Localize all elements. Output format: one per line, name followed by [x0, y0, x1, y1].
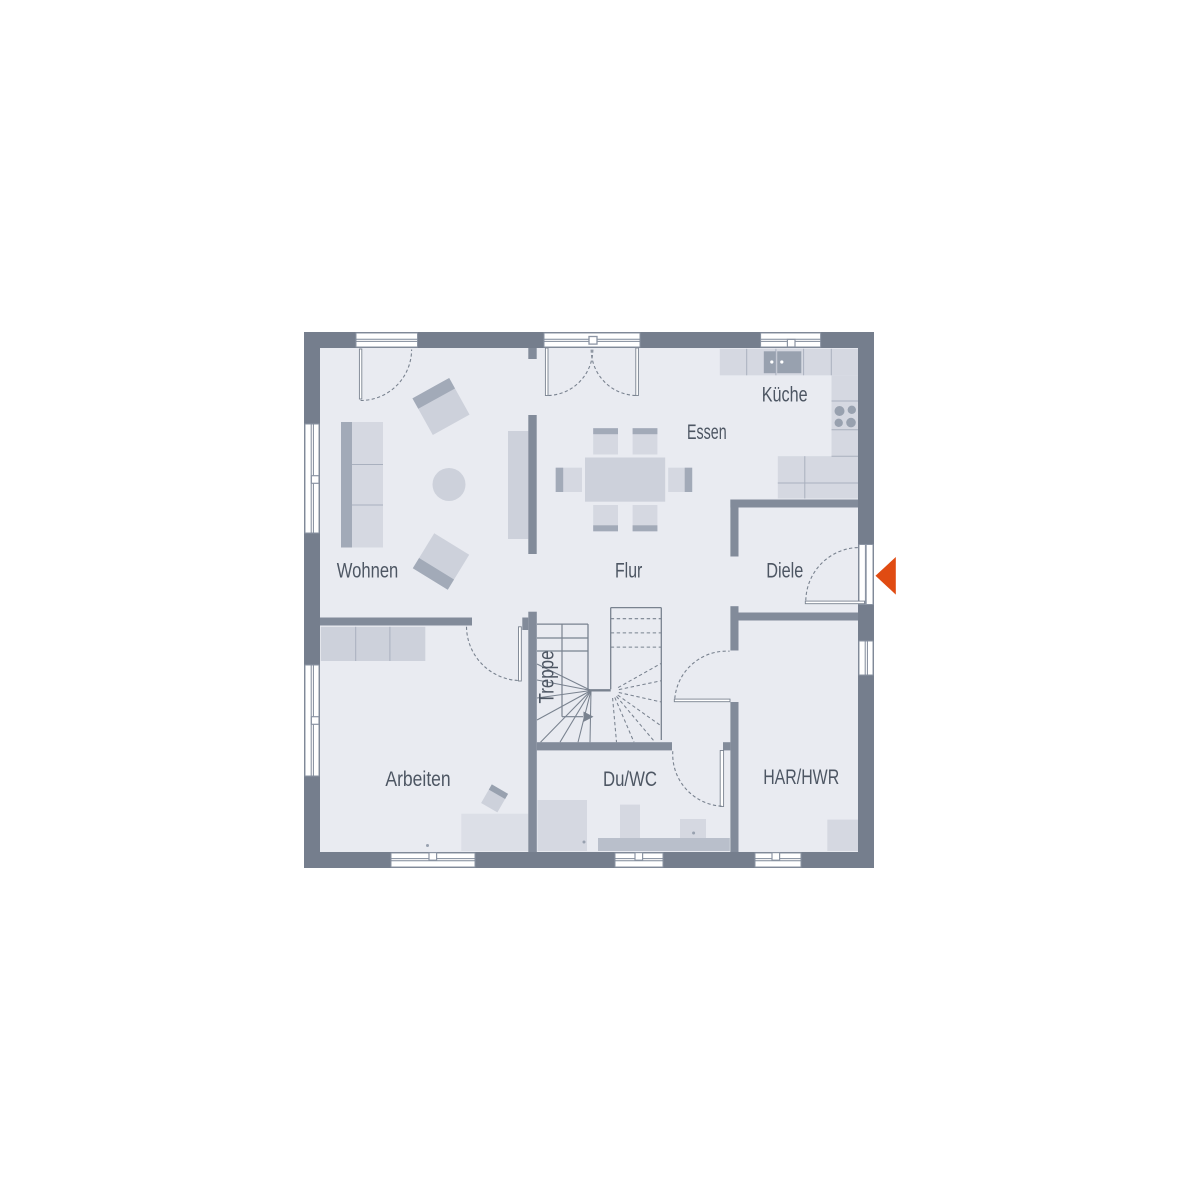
svg-text:HAR/HWR: HAR/HWR [763, 765, 839, 789]
svg-text:Diele: Diele [766, 559, 803, 583]
svg-text:Flur: Flur [615, 559, 642, 583]
svg-text:Treppe: Treppe [535, 651, 559, 704]
svg-text:Küche: Küche [762, 382, 808, 406]
svg-text:Arbeiten: Arbeiten [385, 767, 450, 791]
svg-text:Essen: Essen [687, 420, 727, 444]
svg-text:Du/WC: Du/WC [603, 767, 657, 791]
svg-text:Wohnen: Wohnen [337, 558, 399, 582]
